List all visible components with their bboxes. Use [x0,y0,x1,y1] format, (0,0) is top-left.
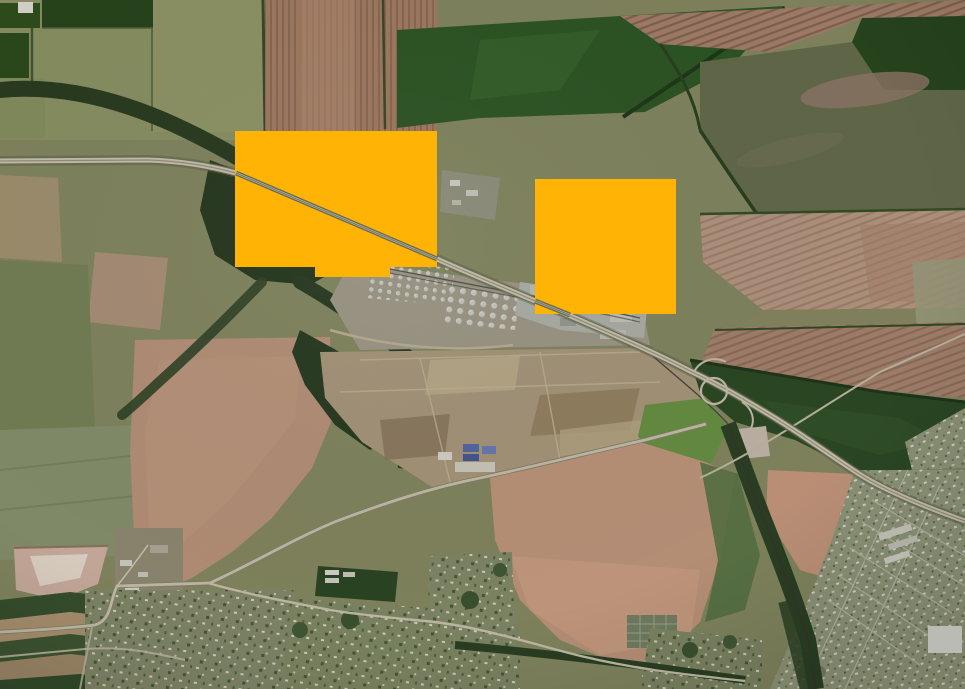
satellite-basemap[interactable] [0,0,965,689]
annotation-box-2[interactable] [535,179,676,314]
annotation-box-1[interactable] [235,131,437,267]
map-viewport [0,0,965,689]
annotation-box-1-notch [315,267,390,277]
